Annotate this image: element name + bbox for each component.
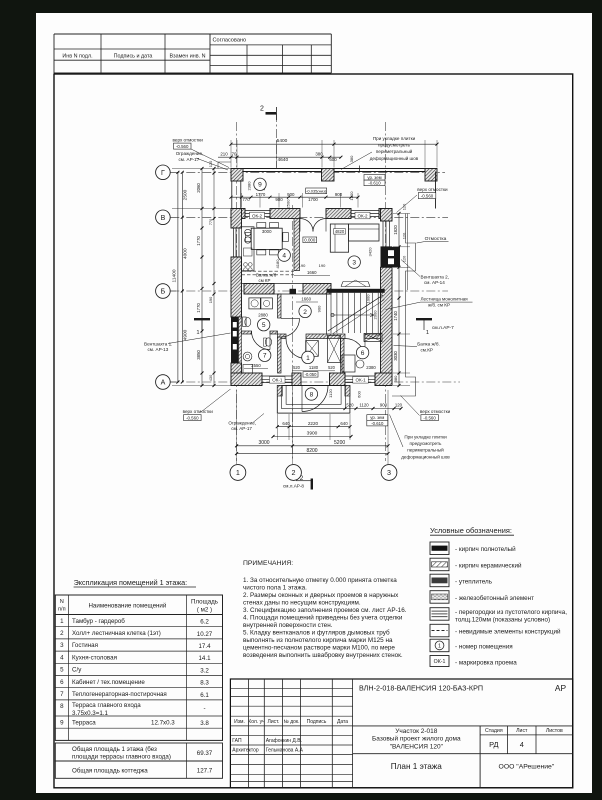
svg-text:РД: РД <box>489 740 498 749</box>
svg-text:Согласовано: Согласовано <box>213 38 247 44</box>
svg-text:1: 1 <box>306 355 310 362</box>
svg-text:п/п: п/п <box>58 607 66 613</box>
svg-text:10.27: 10.27 <box>197 631 213 638</box>
svg-text:Участок 2-018: Участок 2-018 <box>395 728 438 735</box>
svg-text:Условные обозначения:: Условные обозначения: <box>430 526 512 535</box>
svg-text:9: 9 <box>60 720 64 727</box>
svg-text:2. Размеры оконных и дверных п: 2. Размеры оконных и дверных проемов в н… <box>243 592 399 599</box>
svg-text:-0.560: -0.560 <box>421 193 434 198</box>
svg-text:ОК-2: ОК-2 <box>357 213 368 218</box>
svg-text:380: 380 <box>315 151 323 156</box>
svg-text:1: 1 <box>438 644 441 650</box>
svg-text:1: 1 <box>60 618 64 625</box>
svg-text:Дата: Дата <box>337 719 348 725</box>
svg-text:Отмостка: Отмостка <box>425 236 447 242</box>
svg-text:2500: 2500 <box>285 199 290 209</box>
svg-text:430: 430 <box>208 374 213 381</box>
svg-text:АР: АР <box>555 683 567 693</box>
svg-text:2550: 2550 <box>251 363 261 368</box>
svg-text:Общая площадь 1 этажа (без: Общая площадь 1 этажа (без <box>72 746 157 753</box>
svg-text:см. АР-17: см. АР-17 <box>231 426 252 431</box>
svg-text:2380: 2380 <box>247 181 252 191</box>
svg-text:ООО "АРешение": ООО "АРешение" <box>499 764 555 771</box>
svg-text:120: 120 <box>402 232 407 239</box>
svg-text:Кабинет / тех.помещение: Кабинет / тех.помещение <box>72 679 145 686</box>
svg-text:8200: 8200 <box>306 448 317 454</box>
svg-text:Гостиная: Гостиная <box>72 642 98 649</box>
svg-text:площади террасы главного входа: площади террасы главного входа) <box>72 754 171 761</box>
svg-text:3420: 3420 <box>368 247 373 257</box>
svg-text:предусмотреть: предусмотреть <box>378 143 410 148</box>
svg-text:Терраса главного входа: Терраса главного входа <box>72 702 141 709</box>
svg-text:Тамбур - гардероб: Тамбур - гардероб <box>72 618 125 625</box>
svg-text:1740: 1740 <box>393 311 398 321</box>
svg-text:2500: 2500 <box>182 189 188 200</box>
svg-text:верх отмостки: верх отмостки <box>417 187 448 192</box>
svg-text:0.000: 0.000 <box>304 238 316 243</box>
svg-text:- номер помещения: - номер помещения <box>455 643 513 650</box>
svg-text:Базовый проект жилого дома: Базовый проект жилого дома <box>372 735 461 743</box>
svg-text:3. Спецификацию заполнения про: 3. Спецификацию заполнения проемов см. л… <box>243 607 407 614</box>
svg-text:1: 1 <box>426 330 429 336</box>
svg-text:1000: 1000 <box>365 294 370 304</box>
svg-text:- кирпич керамический: - кирпич керамический <box>455 561 522 569</box>
svg-text:Ограждение,: Ограждение, <box>176 151 204 156</box>
svg-text:3.2: 3.2 <box>200 667 209 674</box>
svg-text:2: 2 <box>60 630 64 637</box>
svg-text:4: 4 <box>60 654 64 661</box>
svg-text:4000: 4000 <box>182 248 188 259</box>
svg-text:6.2: 6.2 <box>200 619 209 626</box>
svg-text:Подпись: Подпись <box>307 719 327 725</box>
svg-text:Листов: Листов <box>546 728 563 734</box>
svg-text:Общая площадь коттеджа: Общая площадь коттеджа <box>72 767 148 774</box>
svg-text:Кухня-столовая: Кухня-столовая <box>72 654 117 661</box>
svg-text:ОК-1: ОК-1 <box>356 378 367 383</box>
svg-text:Инв N подл.: Инв N подл. <box>62 54 92 60</box>
svg-text:Экспликация помещений 1 этажа:: Экспликация помещений 1 этажа: <box>74 578 188 587</box>
svg-text:"ВАЛЕНСИЯ 120": "ВАЛЕНСИЯ 120" <box>390 743 444 750</box>
svg-text:1770: 1770 <box>256 192 266 197</box>
svg-text:2: 2 <box>260 106 264 113</box>
svg-text:8: 8 <box>60 703 64 710</box>
svg-text:5400: 5400 <box>277 138 288 144</box>
svg-text:Гельманова А.А: Гельманова А.А <box>266 748 304 754</box>
svg-text:- невидимые элементы конструкц: - невидимые элементы конструкций <box>455 628 561 636</box>
svg-text:5. Кладку вентканалов и футляр: 5. Кладку вентканалов и футляров дымовых… <box>243 629 390 637</box>
svg-text:600: 600 <box>329 157 337 162</box>
svg-text:4: 4 <box>520 740 524 749</box>
svg-text:900: 900 <box>287 192 295 197</box>
svg-text:8: 8 <box>310 391 314 398</box>
svg-text:14.1: 14.1 <box>198 655 211 662</box>
svg-text:2220: 2220 <box>308 421 319 426</box>
svg-text:7: 7 <box>60 691 64 698</box>
svg-text:-0.610: -0.610 <box>371 421 384 426</box>
svg-text:1700: 1700 <box>308 197 318 202</box>
svg-text:3.75x0.3=1.1: 3.75x0.3=1.1 <box>72 710 109 717</box>
svg-text:127.7: 127.7 <box>197 767 213 774</box>
svg-text:4: 4 <box>282 253 286 260</box>
svg-text:2: 2 <box>292 468 296 477</box>
svg-text:1: 1 <box>236 468 240 477</box>
svg-text:770: 770 <box>242 197 250 202</box>
svg-text:12.7x0.3: 12.7x0.3 <box>151 720 175 727</box>
svg-text:3030: 3030 <box>393 351 398 361</box>
svg-text:- утеплитель: - утеплитель <box>455 578 493 585</box>
svg-text:Лист: Лист <box>516 728 528 734</box>
svg-text:3.8: 3.8 <box>200 720 209 727</box>
svg-text:Изм.: Изм. <box>234 719 245 725</box>
svg-text:-: - <box>203 705 205 712</box>
svg-text:ГАП: ГАП <box>232 738 242 744</box>
svg-text:внутренней поверхности стен.: внутренней поверхности стен. <box>243 621 333 629</box>
svg-text:ОК-1: ОК-1 <box>272 378 283 383</box>
svg-text:Стадия: Стадия <box>485 728 503 734</box>
svg-text:Б: Б <box>161 289 166 296</box>
svg-text:3: 3 <box>352 260 356 267</box>
svg-text:выполнять из полнотелого кирпи: выполнять из полнотелого кирпича марки М… <box>243 637 393 644</box>
svg-text:( м2 ): ( м2 ) <box>197 607 212 614</box>
svg-text:Теплогенераторная-постирочная: Теплогенераторная-постирочная <box>72 691 167 698</box>
svg-text:900: 900 <box>275 197 283 202</box>
svg-text:цементно-песчаном растворе мар: цементно-песчаном растворе марки М100, п… <box>243 645 395 652</box>
svg-text:190: 190 <box>319 263 326 268</box>
svg-text:ОК-2: ОК-2 <box>252 213 263 218</box>
svg-text:см. АР-14: см. АР-14 <box>424 280 445 285</box>
svg-text:№ док.: № док. <box>283 719 299 725</box>
svg-text:900: 900 <box>335 192 343 197</box>
svg-text:-0.035(низ): -0.035(низ) <box>306 189 327 194</box>
svg-text:3000: 3000 <box>258 440 269 446</box>
svg-text:9: 9 <box>258 182 262 189</box>
svg-text:2000: 2000 <box>372 310 377 320</box>
svg-text:210: 210 <box>220 151 228 156</box>
svg-text:4180: 4180 <box>275 259 280 269</box>
svg-text:см.КР: см.КР <box>421 347 433 352</box>
svg-text:1200: 1200 <box>349 191 354 201</box>
svg-text:900: 900 <box>380 403 388 408</box>
svg-text:520: 520 <box>293 365 301 370</box>
svg-text:периметральный: периметральный <box>376 148 413 154</box>
svg-text:7: 7 <box>263 353 267 360</box>
svg-text:см. АР-13: см. АР-13 <box>148 347 169 352</box>
svg-text:Г: Г <box>161 170 165 177</box>
svg-text:120: 120 <box>402 203 407 210</box>
svg-text:ВЛН-2-018-ВАЛЕНСИЯ 120-БАЗ-КРП: ВЛН-2-018-ВАЛЕНСИЯ 120-БАЗ-КРП <box>359 683 483 692</box>
svg-text:ОК-1: ОК-1 <box>434 659 446 665</box>
svg-text:возведения выполнить швабровку: возведения выполнить швабровку внутренни… <box>243 651 403 659</box>
svg-text:5: 5 <box>262 322 266 329</box>
svg-text:Лестница монолитная: Лестница монолитная <box>421 297 469 302</box>
svg-text:N: N <box>60 599 64 605</box>
svg-text:Взамен инв. N: Взамен инв. N <box>170 54 206 60</box>
svg-text:3900: 3900 <box>307 431 318 437</box>
svg-text:-0.560: -0.560 <box>176 144 189 149</box>
svg-text:верх отмостки: верх отмостки <box>173 138 204 143</box>
svg-text:Архитектор: Архитектор <box>232 748 259 754</box>
svg-text:1: 1 <box>196 330 199 336</box>
svg-text:толщ.120мм (показаны условно): толщ.120мм (показаны условно) <box>455 617 550 624</box>
svg-text:-0.560: -0.560 <box>423 415 436 420</box>
svg-text:6: 6 <box>361 350 365 357</box>
svg-text:380: 380 <box>393 375 398 382</box>
svg-text:5: 5 <box>60 667 64 674</box>
svg-text:17.4: 17.4 <box>198 643 211 650</box>
svg-text:69.37: 69.37 <box>197 750 213 757</box>
svg-text:Холл+ лестничная клетка (1эт): Холл+ лестничная клетка (1эт) <box>72 630 161 637</box>
svg-text:11400: 11400 <box>171 269 177 282</box>
svg-text:деформационный шов: деформационный шов <box>370 155 419 161</box>
svg-text:Площадь: Площадь <box>191 599 218 606</box>
svg-text:380: 380 <box>349 155 354 162</box>
svg-text:1660: 1660 <box>307 270 317 275</box>
svg-text:предусмотреть: предусмотреть <box>410 441 442 446</box>
svg-text:70: 70 <box>232 151 237 156</box>
svg-text:см. АР-17: см. АР-17 <box>179 157 200 162</box>
svg-text:1120: 1120 <box>359 403 369 408</box>
svg-text:520: 520 <box>328 365 336 370</box>
svg-text:чистого пола 1 этажа.: чистого пола 1 этажа. <box>243 585 307 592</box>
svg-text:2: 2 <box>303 309 307 316</box>
svg-text:ур. зем: ур. зем <box>367 175 381 180</box>
svg-text:деформационный шов: деформационный шов <box>401 453 450 459</box>
svg-text:770: 770 <box>208 218 213 225</box>
svg-text:ж/б. см КР: ж/б. см КР <box>428 303 450 308</box>
svg-text:4640: 4640 <box>277 157 288 163</box>
svg-text:8.3: 8.3 <box>200 680 209 687</box>
svg-text:1770: 1770 <box>196 303 201 313</box>
svg-text:-0.560: -0.560 <box>186 415 199 420</box>
svg-text:В: В <box>161 215 166 222</box>
svg-text:Балка ж/б.: Балка ж/б. <box>417 341 439 346</box>
svg-text:см КР: см КР <box>259 278 271 283</box>
svg-text:С/у: С/у <box>72 667 82 674</box>
svg-text:1770: 1770 <box>196 236 201 246</box>
svg-text:2060: 2060 <box>196 183 201 193</box>
svg-text:2380: 2380 <box>366 365 376 370</box>
svg-text:- железобетонный элемент: - железобетонный элемент <box>455 594 534 602</box>
svg-text:1660: 1660 <box>301 296 311 301</box>
svg-text:600: 600 <box>357 390 362 397</box>
svg-text:2880: 2880 <box>258 313 268 318</box>
svg-text:190: 190 <box>299 263 306 268</box>
svg-text:Подпись и дата: Подпись и дата <box>114 54 153 60</box>
svg-text:Вентшахта 2,: Вентшахта 2, <box>421 274 449 279</box>
svg-text:6: 6 <box>60 679 64 686</box>
svg-text:3850: 3850 <box>196 350 201 360</box>
svg-text:640: 640 <box>282 421 290 426</box>
svg-text:3000: 3000 <box>262 229 272 234</box>
svg-text:1820: 1820 <box>393 225 398 235</box>
svg-text:При укладке плитки: При укладке плитки <box>373 136 416 141</box>
svg-text:1180: 1180 <box>309 365 319 370</box>
svg-text:Агафонкин Д.В.: Агафонкин Д.В. <box>266 738 302 744</box>
svg-text:120: 120 <box>402 255 407 262</box>
svg-text:периметральный: периметральный <box>407 447 444 453</box>
svg-text:стенах даны по несущим констру: стенах даны по несущим конструкциям. <box>243 600 361 607</box>
svg-text:- маркировка проема: - маркировка проема <box>455 660 517 667</box>
svg-text:План 1 этажа: План 1 этажа <box>391 762 443 771</box>
svg-text:Вентшахта 1.: Вентшахта 1. <box>144 341 172 346</box>
svg-text:Лист.: Лист. <box>268 719 280 725</box>
svg-text:190: 190 <box>208 296 213 303</box>
svg-text:4900: 4900 <box>182 329 188 340</box>
svg-text:-0.050: -0.050 <box>305 372 318 377</box>
svg-text:Ограждение,: Ограждение, <box>228 420 256 425</box>
svg-text:ПРИМЕЧАНИЯ:: ПРИМЕЧАНИЯ: <box>243 560 293 567</box>
svg-text:640: 640 <box>340 421 348 426</box>
svg-text:6.1: 6.1 <box>200 692 209 699</box>
svg-text:120: 120 <box>395 403 403 408</box>
svg-text:1. За относительную отметку 0.: 1. За относительную отметку 0.000 принят… <box>243 577 397 584</box>
svg-text:- кирпич полнотелый: - кирпич полнотелый <box>455 545 516 553</box>
svg-text:ур. зем: ур. зем <box>370 415 384 420</box>
svg-text:5200: 5200 <box>334 440 345 446</box>
svg-text:А: А <box>161 380 166 387</box>
svg-text:3: 3 <box>60 642 64 649</box>
svg-text:2: 2 <box>300 475 304 482</box>
svg-text:см.л.АР-8: см.л.АР-8 <box>283 484 304 489</box>
svg-text:- перегородки из пустотелого к: - перегородки из пустотелого кирпича, <box>455 609 567 616</box>
svg-text:Наименование помещений: Наименование помещений <box>88 603 166 610</box>
svg-text:3: 3 <box>387 468 391 477</box>
svg-text:см.л.АР-7: см.л.АР-7 <box>432 325 454 331</box>
svg-text:4820: 4820 <box>335 229 345 234</box>
svg-text:4. Площади помещений приведены: 4. Площади помещений приведены без учета… <box>243 614 403 622</box>
svg-text:Терраса: Терраса <box>72 720 96 727</box>
svg-text:-0.610: -0.610 <box>368 181 381 186</box>
svg-text:Кол. уч: Кол. уч <box>248 719 265 725</box>
svg-text:верх отмостки: верх отмостки <box>420 409 451 414</box>
svg-text:1120: 1120 <box>328 388 333 397</box>
svg-text:верх отмостки: верх отмостки <box>183 409 214 414</box>
svg-text:При укладке плитки: При укладке плитки <box>404 435 447 440</box>
svg-text:900: 900 <box>316 305 321 312</box>
